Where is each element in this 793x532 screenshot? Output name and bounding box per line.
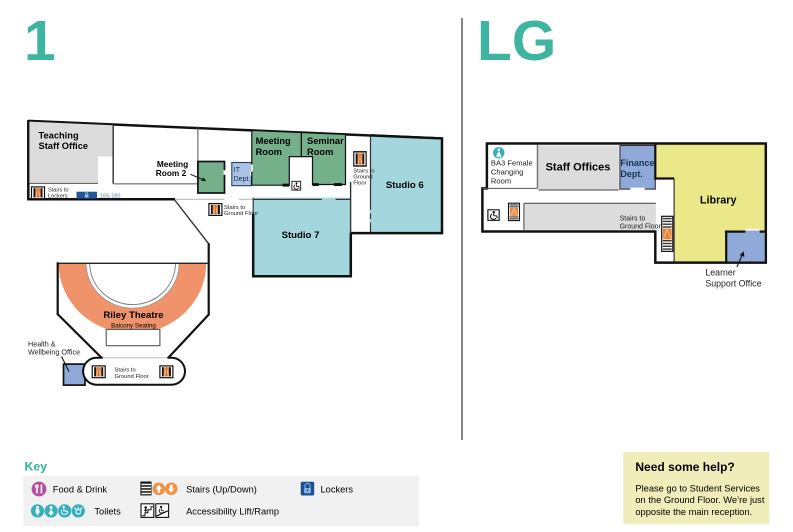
- svg-text:LG: LG: [477, 9, 556, 73]
- svg-text:Support Office: Support Office: [705, 278, 761, 288]
- svg-text:Seminar: Seminar: [307, 136, 344, 146]
- svg-text:Room: Room: [256, 147, 282, 157]
- svg-text:Toilets: Toilets: [94, 506, 121, 516]
- svg-text:Learner: Learner: [705, 267, 735, 277]
- svg-text:Finance: Finance: [620, 158, 654, 168]
- svg-text:Dept.: Dept.: [234, 176, 251, 183]
- svg-text:Balcony Seating: Balcony Seating: [111, 322, 156, 329]
- svg-text:Stairs to: Stairs to: [353, 169, 374, 175]
- svg-text:opposite the main reception.: opposite the main reception.: [635, 507, 752, 517]
- svg-text:Changing: Changing: [491, 168, 524, 177]
- svg-text:Accessibility Lift/Ramp: Accessibility Lift/Ramp: [186, 506, 279, 516]
- svg-text:Please go to Student Services: Please go to Student Services: [635, 484, 760, 494]
- svg-text:Library: Library: [700, 194, 737, 206]
- svg-text:BA3 Female: BA3 Female: [491, 159, 533, 168]
- svg-text:Stairs to: Stairs to: [115, 368, 136, 374]
- svg-text:Riley Theatre: Riley Theatre: [103, 310, 163, 321]
- svg-text:Room 2: Room 2: [156, 168, 187, 178]
- svg-text:on the Ground Floor. We’re jus: on the Ground Floor. We’re just: [635, 495, 764, 505]
- svg-text:Stairs to: Stairs to: [620, 215, 646, 222]
- svg-text:Room: Room: [491, 177, 511, 186]
- svg-text:165-180: 165-180: [100, 194, 121, 200]
- svg-text:Ground Floor: Ground Floor: [620, 224, 662, 231]
- svg-text:Need some help?: Need some help?: [635, 460, 734, 474]
- svg-text:Floor: Floor: [353, 181, 366, 187]
- svg-text:Teaching: Teaching: [39, 131, 79, 141]
- svg-text:Dept.: Dept.: [620, 169, 643, 179]
- svg-text:Food & Drink: Food & Drink: [53, 484, 108, 494]
- svg-text:Stairs (Up/Down): Stairs (Up/Down): [186, 484, 257, 494]
- svg-text:Studio 7: Studio 7: [282, 230, 320, 241]
- svg-text:Ground Floor: Ground Floor: [115, 374, 149, 380]
- svg-text:1: 1: [24, 9, 56, 73]
- svg-text:Key: Key: [25, 460, 48, 474]
- svg-text:Lockers: Lockers: [321, 484, 354, 494]
- svg-text:Staff Offices: Staff Offices: [546, 162, 611, 174]
- svg-text:Studio 6: Studio 6: [386, 180, 424, 191]
- svg-text:Wellbeing Office: Wellbeing Office: [28, 347, 80, 356]
- svg-text:Stairs to: Stairs to: [224, 205, 245, 211]
- svg-text:Lockers: Lockers: [48, 194, 68, 200]
- svg-text:IT: IT: [234, 167, 241, 174]
- svg-text:Ground: Ground: [353, 175, 372, 181]
- svg-text:Ground Floor: Ground Floor: [224, 211, 258, 217]
- svg-text:Meeting: Meeting: [256, 136, 291, 146]
- svg-text:Staff Office: Staff Office: [39, 141, 89, 151]
- svg-text:Room: Room: [307, 147, 333, 157]
